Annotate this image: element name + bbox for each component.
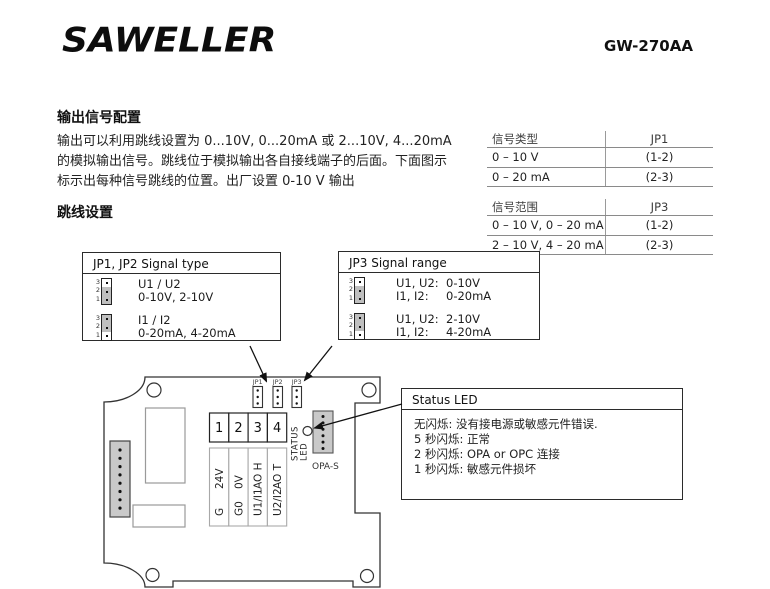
jumper-channel-value: 0-20mA (446, 290, 491, 303)
mounting-hole (361, 570, 374, 583)
column-header: JP3 (605, 199, 713, 215)
terminal-label: U1/I1 (253, 488, 265, 516)
jumper-signal-range: 0-10V, 2-10V (138, 291, 213, 304)
status-led-line: 5 秒闪烁: 正常 (414, 432, 670, 447)
status-led-line: 无闪烁: 没有接电源或敏感元件错误. (414, 417, 670, 432)
led-indicator (303, 427, 312, 436)
component-outline (133, 505, 185, 527)
terminal-number: 2 (234, 421, 242, 436)
pin-number: 2 (347, 321, 353, 329)
box-title: Status LED (402, 389, 682, 410)
status-led-text: STATUS (291, 426, 301, 461)
table-cell: 0 – 10 V (487, 148, 605, 167)
table-cell: (1-2) (605, 216, 713, 235)
jumper-icon-cap-1-2: 3 2 1 (94, 278, 112, 305)
jumper-legend-row: 3 2 1 U1, U2: I1, I2: 2-10V 4-20mA (347, 313, 491, 340)
pin-number: 2 (347, 285, 353, 293)
signal-type-table: 信号类型 JP1 0 – 10 V (1-2) 0 – 20 mA (2-3) (487, 131, 713, 187)
brand-logo: SAWELLER (62, 21, 276, 60)
status-led: STATUS LED (291, 426, 313, 461)
jumper-label: JP1 (252, 378, 263, 386)
table-row: 0 – 10 V (1-2) (487, 148, 713, 168)
terminal-number: 4 (273, 421, 281, 436)
jumper-icon-cap-2-3: 3 2 1 (347, 313, 365, 340)
board-jumper-jp3: JP3 (291, 378, 302, 408)
table-header-row: 信号范围 JP3 (487, 199, 713, 216)
pin-number: 1 (347, 330, 353, 338)
table-cell: 0 – 10 V, 0 – 20 mA (487, 216, 605, 235)
box-title: JP3 Signal range (339, 252, 539, 273)
section-title-output-config: 输出信号配置 (57, 107, 141, 127)
table-row: 0 – 10 V, 0 – 20 mA (1-2) (487, 216, 713, 236)
table-header-row: 信号类型 JP1 (487, 131, 713, 148)
output-config-paragraph: 输出可以利用跳线设置为 0...10V, 0...20mA 或 2...10V,… (57, 132, 452, 192)
terminal-number-row: 1 2 3 4 (210, 413, 287, 442)
jumper-channel-label: I1, I2: (396, 290, 446, 303)
jumper-label: JP3 (291, 378, 302, 386)
jumper-channel-label: I1, I2: (396, 326, 446, 339)
jumper-signal-range: 0-20mA, 4-20mA (138, 327, 236, 340)
pin-number: 3 (347, 277, 353, 285)
terminal-label: AO T (272, 463, 284, 489)
terminal-label: G0 (233, 501, 245, 516)
column-header: 信号类型 (487, 131, 605, 147)
table-cell: (2-3) (605, 236, 713, 255)
mounting-hole (146, 569, 159, 582)
status-led-line: 1 秒闪烁: 敏感元件损坏 (414, 462, 670, 477)
left-connector (110, 441, 130, 517)
opa-s-label: OPA-S (312, 462, 339, 472)
jumper-label: JP2 (272, 378, 283, 386)
paragraph-line: 输出可以利用跳线设置为 0...10V, 0...20mA 或 2...10V,… (57, 132, 452, 152)
jumper-icon-cap-2-3: 3 2 1 (94, 314, 112, 341)
arrow-to-jp1 (250, 346, 267, 382)
jumper-channel-value: 4-20mA (446, 326, 491, 339)
paragraph-line: 的模拟输出信号。跳线位于模拟输出各自接线端子的后面。下面图示 (57, 152, 452, 172)
component-outline (146, 408, 186, 483)
section-title-jumper-settings: 跳线设置 (57, 202, 113, 222)
paragraph-line: 标示出每种信号跳线的位置。出厂设置 0-10 V 输出 (57, 172, 452, 192)
terminal-label: AO H (253, 463, 265, 490)
terminal-label: G (214, 508, 226, 516)
opa-s-connector: OPA-S (312, 411, 339, 472)
pin-number: 1 (94, 331, 100, 339)
column-header: 信号范围 (487, 199, 605, 215)
board-jumper-jp1: JP1 (252, 378, 263, 408)
pin-number: 2 (94, 322, 100, 330)
pin-number: 1 (347, 294, 353, 302)
pin-number: 3 (94, 278, 100, 286)
table-row: 0 – 20 mA (2-3) (487, 168, 713, 188)
mounting-hole (362, 383, 376, 397)
board-jumper-jp2: JP2 (272, 378, 283, 408)
column-header: JP1 (605, 131, 713, 147)
status-led-text: LED (300, 443, 310, 461)
board-outline (104, 377, 380, 587)
status-led-line: 2 秒闪烁: OPA or OPC 连接 (414, 447, 670, 462)
table-cell: (2-3) (605, 168, 713, 187)
pin-number: 3 (347, 313, 353, 321)
terminal-number: 1 (215, 421, 223, 436)
terminal-label: 24V (214, 468, 226, 489)
jumper-legend-row: 3 2 1 U1, U2: I1, I2: 0-10V 0-20mA (347, 277, 491, 304)
jumper-legend-row: 3 2 1 U1 / U2 0-10V, 2-10V (94, 278, 213, 305)
pin-number: 2 (94, 286, 100, 294)
datasheet-page: { "header": { "logo": "SAWELLER", "model… (0, 0, 770, 589)
product-model: GW-270AA (604, 37, 704, 55)
arrow-to-jp3 (305, 346, 333, 381)
terminal-label: 0V (233, 474, 245, 489)
jp12-signal-type-box: JP1, JP2 Signal type 3 2 1 U1 / U2 0-10V… (82, 252, 281, 341)
terminal-number: 3 (254, 421, 262, 436)
status-led-box: Status LED 无闪烁: 没有接电源或敏感元件错误. 5 秒闪烁: 正常 … (401, 388, 683, 500)
box-title: JP1, JP2 Signal type (83, 253, 280, 274)
pin-number: 3 (94, 314, 100, 322)
mounting-hole (147, 383, 161, 397)
jumper-legend-row: 3 2 1 I1 / I2 0-20mA, 4-20mA (94, 314, 236, 341)
arrow-to-led (315, 404, 403, 428)
jumper-icon-cap-1-2: 3 2 1 (347, 277, 365, 304)
terminal-label-block: G 24V G0 0V U1/I1 AO H U2/I2 AO T (210, 448, 287, 526)
pin-number: 1 (94, 295, 100, 303)
signal-range-table: 信号范围 JP3 0 – 10 V, 0 – 20 mA (1-2) 2 – 1… (487, 199, 713, 255)
terminal-label: U2/I2 (272, 488, 284, 516)
table-cell: (1-2) (605, 148, 713, 167)
table-cell: 0 – 20 mA (487, 168, 605, 187)
jp3-signal-range-box: JP3 Signal range 3 2 1 U1, U2: I1, I2: 0… (338, 251, 540, 340)
